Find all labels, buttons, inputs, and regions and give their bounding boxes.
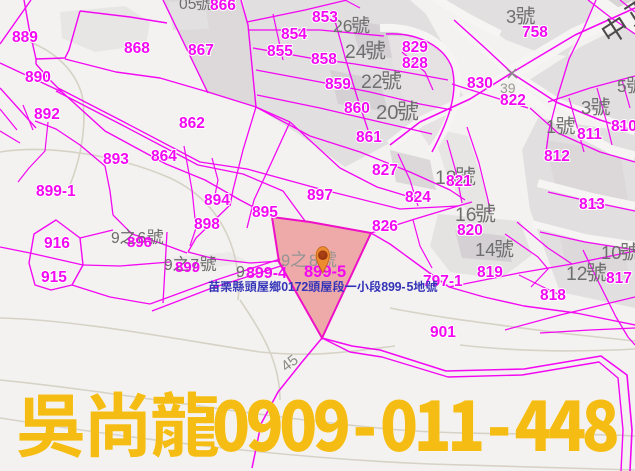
svg-text:864: 864 <box>151 148 177 165</box>
svg-text:820: 820 <box>457 222 483 239</box>
svg-text:853: 853 <box>312 9 338 26</box>
svg-text:893: 893 <box>103 151 129 168</box>
svg-text:858: 858 <box>311 51 337 68</box>
svg-text:866: 866 <box>210 0 236 14</box>
svg-text:5: 5 <box>617 76 627 96</box>
svg-text:828: 828 <box>402 55 428 72</box>
svg-text:24: 24 <box>345 42 367 63</box>
svg-text:895: 895 <box>252 204 278 221</box>
svg-text:894: 894 <box>204 192 230 209</box>
svg-text:05: 05 <box>179 0 197 13</box>
svg-text:867: 867 <box>188 42 214 59</box>
svg-text:3: 3 <box>506 6 516 27</box>
svg-text:915: 915 <box>41 269 67 286</box>
svg-text:855: 855 <box>267 43 293 60</box>
svg-text:9: 9 <box>111 230 120 247</box>
svg-text:897: 897 <box>307 187 333 204</box>
svg-text:1: 1 <box>546 116 556 137</box>
svg-text:901: 901 <box>430 324 456 341</box>
svg-text:758: 758 <box>522 24 548 41</box>
svg-text:822: 822 <box>500 92 526 109</box>
svg-text:899-1: 899-1 <box>36 183 76 200</box>
svg-text:861: 861 <box>356 129 382 146</box>
svg-text:830: 830 <box>467 75 493 92</box>
svg-text:2: 2 <box>301 280 308 294</box>
svg-text:916: 916 <box>44 235 70 252</box>
svg-text:22: 22 <box>361 72 382 93</box>
svg-text:14: 14 <box>475 239 495 260</box>
svg-text:5: 5 <box>406 280 413 294</box>
svg-text:892: 892 <box>34 106 60 123</box>
svg-text:899: 899 <box>175 259 200 276</box>
svg-text:9: 9 <box>236 264 245 281</box>
svg-text:862: 862 <box>179 115 205 132</box>
svg-text:854: 854 <box>281 26 307 43</box>
svg-text:889: 889 <box>12 29 38 46</box>
svg-text:896: 896 <box>127 234 152 251</box>
svg-text:829: 829 <box>402 39 428 56</box>
svg-text:818: 818 <box>540 287 566 304</box>
svg-text:813: 813 <box>579 196 605 213</box>
svg-text:827: 827 <box>372 162 398 179</box>
svg-text:819: 819 <box>477 264 503 281</box>
svg-text:810: 810 <box>611 118 635 135</box>
svg-text:812: 812 <box>544 148 570 165</box>
svg-text:890: 890 <box>25 69 51 86</box>
svg-text:868: 868 <box>124 40 150 57</box>
svg-text:3: 3 <box>581 97 591 118</box>
svg-text:20: 20 <box>376 102 399 124</box>
svg-text:10: 10 <box>601 242 621 263</box>
svg-text:817: 817 <box>606 270 632 287</box>
svg-text:898: 898 <box>194 216 220 233</box>
svg-text:9: 9 <box>164 257 173 274</box>
svg-text:811: 811 <box>577 126 602 143</box>
svg-text:826: 826 <box>372 218 398 235</box>
svg-text:-: - <box>401 280 405 294</box>
svg-text:859: 859 <box>325 76 351 93</box>
svg-text:860: 860 <box>344 100 370 117</box>
svg-text:824: 824 <box>405 189 431 206</box>
svg-text:12: 12 <box>566 264 587 285</box>
svg-text:821: 821 <box>446 173 472 190</box>
